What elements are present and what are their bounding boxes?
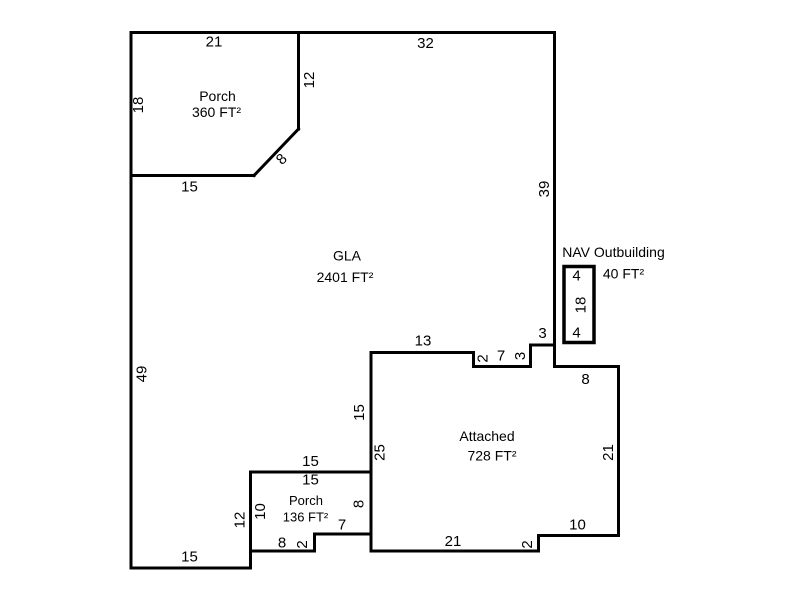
svg-text:49: 49 [134, 366, 151, 383]
svg-text:2: 2 [294, 540, 311, 548]
svg-text:136 FT²: 136 FT² [283, 510, 329, 525]
svg-text:21: 21 [600, 444, 617, 461]
svg-text:40 FT²: 40 FT² [603, 266, 645, 282]
svg-text:18: 18 [130, 97, 147, 114]
svg-text:15: 15 [302, 453, 319, 470]
svg-text:728 FT²: 728 FT² [467, 448, 516, 464]
svg-text:15: 15 [181, 179, 198, 196]
svg-text:21: 21 [445, 533, 462, 550]
svg-text:4: 4 [572, 325, 580, 342]
svg-text:13: 13 [415, 333, 432, 350]
svg-text:12: 12 [232, 512, 249, 529]
svg-text:12: 12 [301, 72, 318, 89]
svg-text:Porch: Porch [289, 493, 323, 508]
svg-text:2: 2 [519, 540, 536, 548]
svg-text:7: 7 [497, 348, 505, 365]
svg-text:39: 39 [536, 181, 553, 198]
svg-text:3: 3 [512, 352, 529, 360]
svg-text:15: 15 [181, 549, 198, 566]
svg-text:7: 7 [338, 517, 346, 534]
svg-text:8: 8 [278, 535, 286, 552]
svg-text:360 FT²: 360 FT² [192, 104, 241, 120]
svg-text:32: 32 [417, 35, 434, 52]
svg-text:10: 10 [252, 503, 269, 520]
svg-text:2401 FT²: 2401 FT² [317, 269, 374, 285]
svg-text:21: 21 [206, 34, 223, 51]
svg-text:GLA: GLA [333, 248, 362, 264]
svg-text:Attached: Attached [459, 428, 514, 444]
svg-text:Porch: Porch [199, 88, 236, 104]
svg-text:8: 8 [581, 371, 589, 388]
svg-text:15: 15 [302, 472, 319, 489]
svg-text:15: 15 [351, 404, 368, 421]
svg-text:25: 25 [372, 444, 389, 461]
svg-text:4: 4 [572, 268, 580, 285]
svg-text:NAV Outbuilding: NAV Outbuilding [562, 244, 664, 260]
svg-text:10: 10 [569, 517, 586, 534]
svg-text:8: 8 [351, 500, 368, 508]
svg-text:3: 3 [538, 325, 546, 342]
svg-text:18: 18 [573, 297, 590, 314]
svg-text:2: 2 [475, 354, 492, 362]
